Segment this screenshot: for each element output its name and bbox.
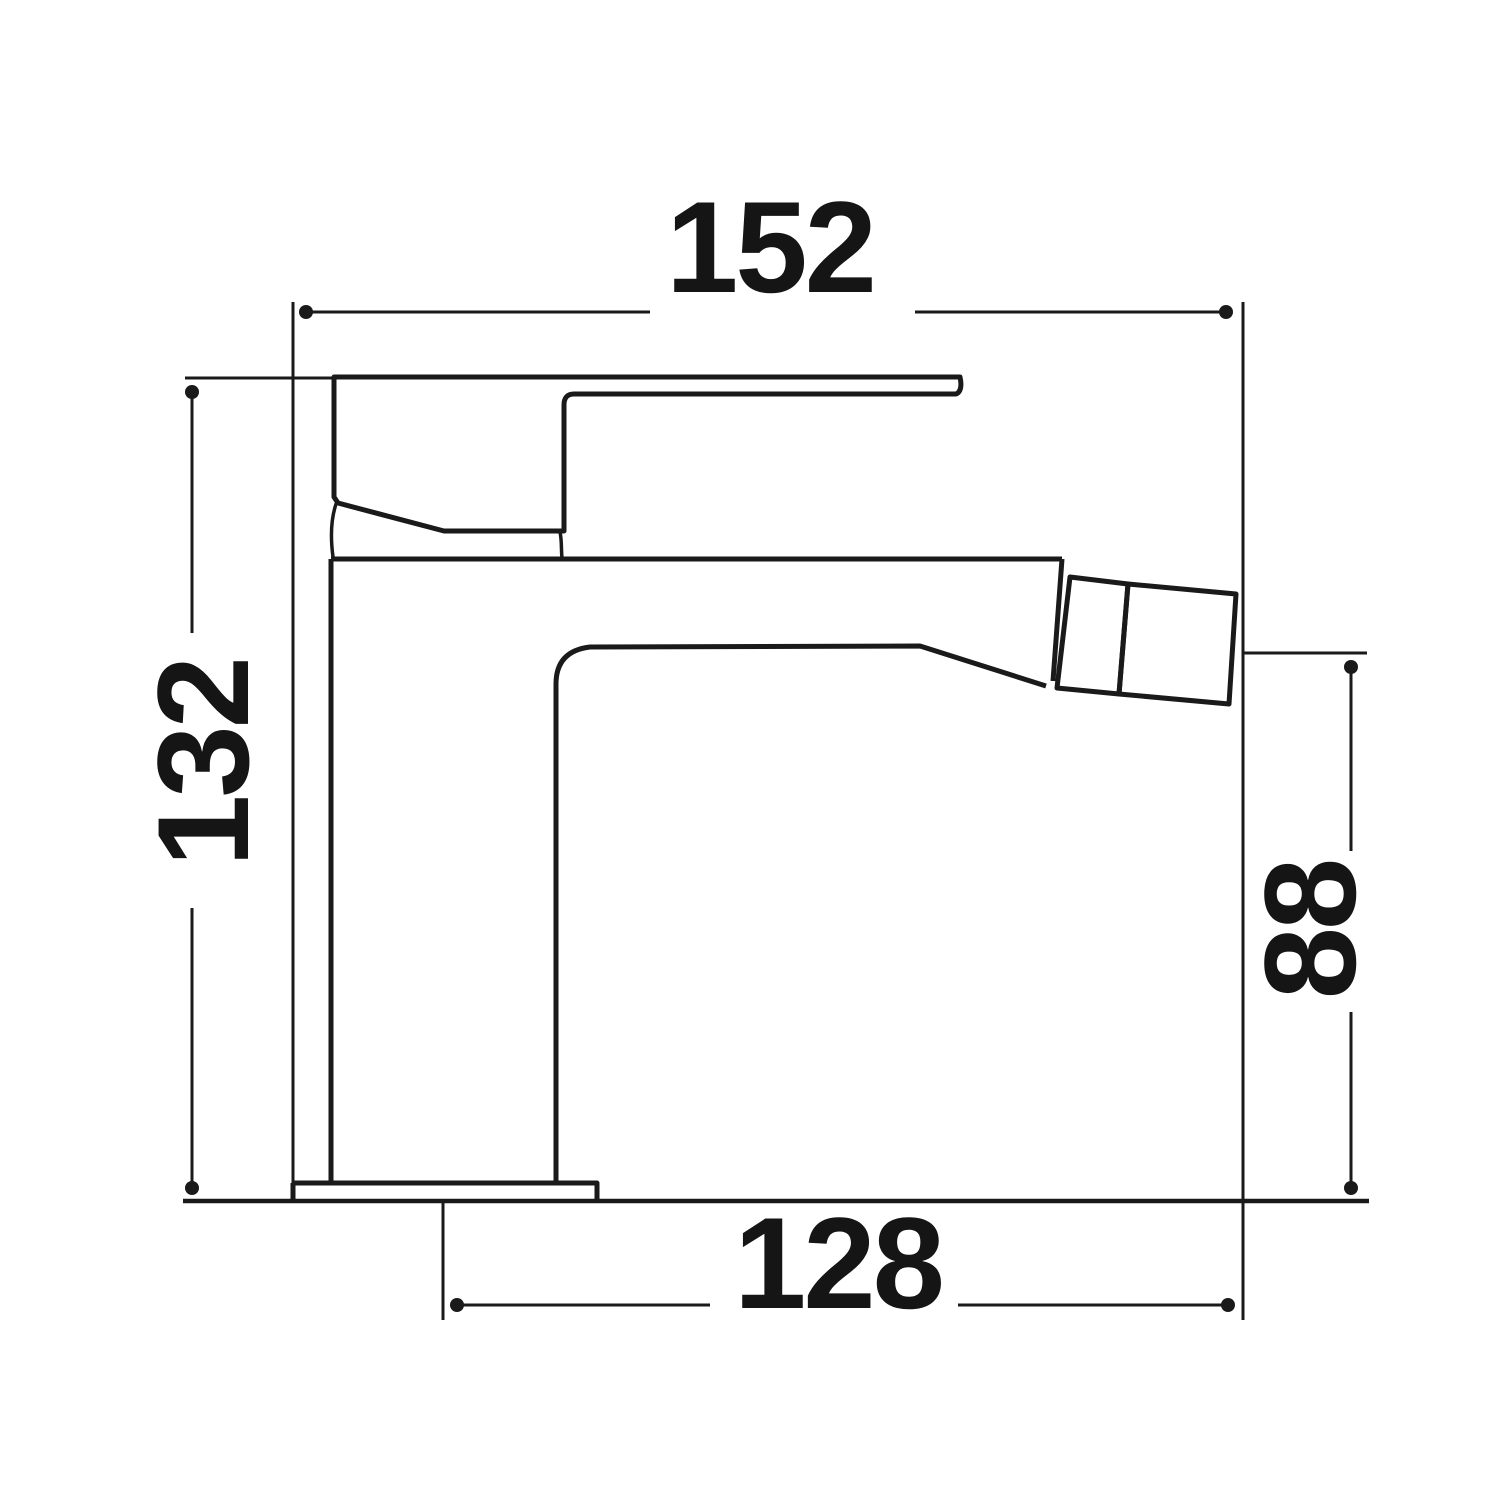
- extension-lines: [185, 302, 1367, 1320]
- arrow-dot: [185, 385, 199, 399]
- faucet-technical-drawing: 152 132 88 128: [0, 0, 1500, 1500]
- dimension-label-bottom-reach: 128: [734, 1190, 942, 1336]
- dimension-bottom-reach: 128: [450, 1190, 1235, 1336]
- aerator-head: [1119, 584, 1236, 704]
- dimension-label-right-spout-height: 88: [1237, 861, 1383, 1000]
- arrow-dot: [299, 305, 313, 319]
- cap-joint-right: [560, 532, 562, 558]
- base-plate: [293, 1183, 597, 1201]
- arrow-dot: [185, 1181, 199, 1195]
- cap-joint-left: [331, 504, 336, 557]
- arrow-dot: [1344, 660, 1358, 674]
- technical-drawing-page: 152 132 88 128: [0, 0, 1500, 1500]
- faucet-outline: [183, 377, 1369, 1201]
- arrow-dot: [1344, 1181, 1358, 1195]
- dimension-label-left-height: 132: [130, 659, 276, 867]
- faucet-lever-handle: [334, 377, 961, 531]
- body-front-and-spout-underside: [556, 646, 1046, 1183]
- arrow-dot: [1219, 305, 1233, 319]
- aerator-collar: [1057, 577, 1128, 694]
- dimension-right-spout-height: 88: [1237, 660, 1383, 1195]
- arrow-dot: [450, 1298, 464, 1312]
- dimension-top-width: 152: [299, 174, 1233, 320]
- dimension-left-height: 132: [130, 385, 276, 1195]
- arrow-dot: [1221, 1298, 1235, 1312]
- dimension-label-top-width: 152: [666, 174, 874, 320]
